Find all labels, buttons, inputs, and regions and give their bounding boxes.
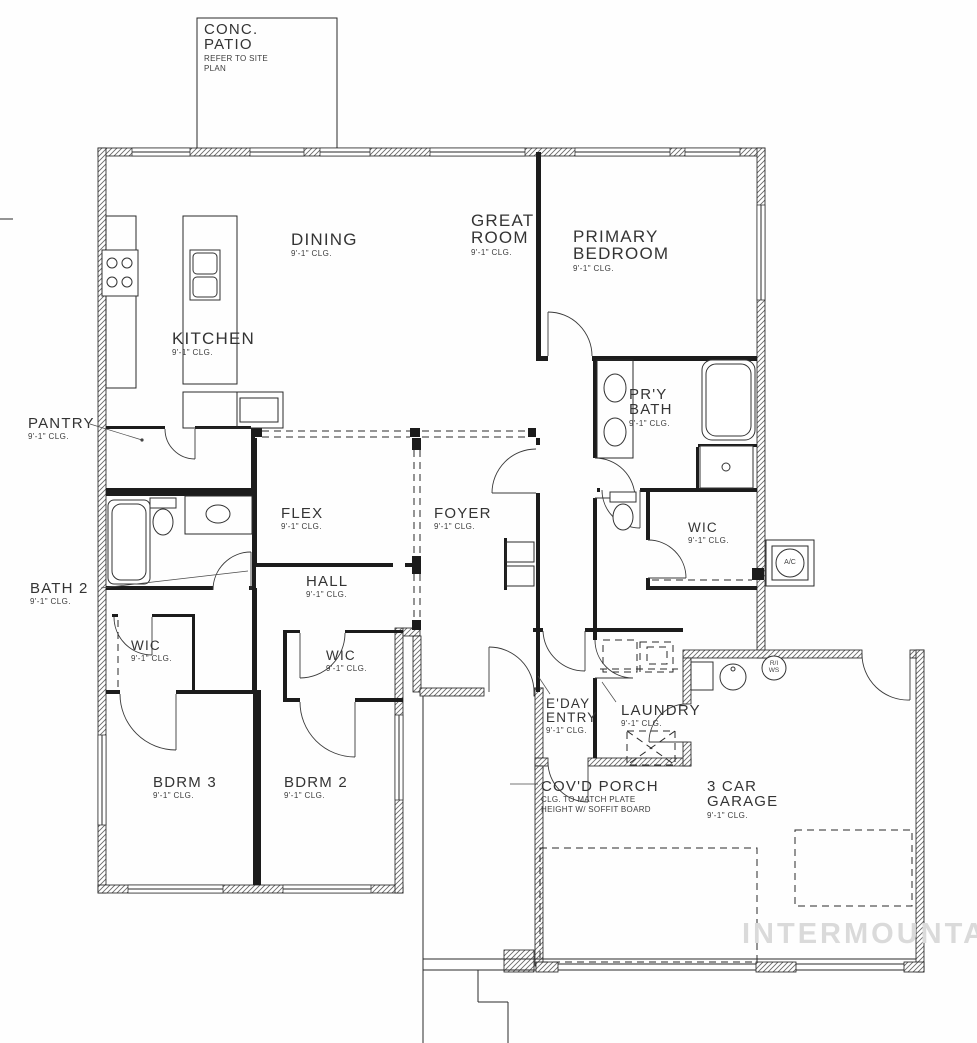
room-label-wic-bdrm3: WIC 9'-1" CLG. bbox=[131, 639, 172, 663]
ceiling-height: 9'-1" CLG. bbox=[434, 522, 492, 531]
room-note: REFER TO SITE PLAN bbox=[204, 54, 268, 74]
ceiling-height: 9'-1" CLG. bbox=[284, 791, 348, 800]
ceiling-height: 9'-1" CLG. bbox=[573, 264, 669, 273]
room-name: GREAT ROOM bbox=[471, 212, 534, 247]
room-name: WIC bbox=[131, 639, 172, 653]
room-label-bdrm-2: BDRM 2 9'-1" CLG. bbox=[284, 775, 348, 800]
watermark: INTERMOUNTAIN bbox=[742, 918, 977, 951]
ceiling-height: 9'-1" CLG. bbox=[546, 726, 598, 735]
ceiling-height: 9'-1" CLG. bbox=[471, 248, 534, 257]
water-softener-label: R/I WS bbox=[765, 661, 783, 675]
room-label-laundry: LAUNDRY 9'-1" CLG. bbox=[621, 703, 701, 728]
bath2-fixtures bbox=[108, 496, 252, 584]
room-label-primary-bedroom: PRIMARY BEDROOM 9'-1" CLG. bbox=[573, 228, 669, 273]
room-name: FOYER bbox=[434, 506, 492, 521]
ceiling-height: 9'-1" CLG. bbox=[131, 654, 172, 663]
room-label-bdrm-3: BDRM 3 9'-1" CLG. bbox=[153, 775, 217, 800]
patio-outline bbox=[0, 18, 337, 219]
room-name: 3 CAR GARAGE bbox=[707, 779, 778, 810]
room-name: HALL bbox=[306, 574, 348, 589]
room-name: WIC bbox=[688, 521, 729, 535]
room-name: LAUNDRY bbox=[621, 703, 701, 718]
room-name: DINING bbox=[291, 231, 358, 248]
room-name: FLEX bbox=[281, 506, 323, 521]
ceiling-height: 9'-1" CLG. bbox=[629, 419, 673, 428]
room-name: WIC bbox=[326, 649, 367, 663]
room-note: CLG. TO MATCH PLATE HEIGHT W/ SOFFIT BOA… bbox=[541, 795, 659, 815]
room-name: PANTRY bbox=[28, 416, 95, 431]
ceiling-height: 9'-1" CLG. bbox=[306, 590, 348, 599]
room-label-pry-bath: PR'Y BATH 9'-1" CLG. bbox=[629, 387, 673, 428]
room-label-conc-patio: CONC. PATIO REFER TO SITE PLAN bbox=[204, 22, 268, 74]
room-label-garage: 3 CAR GARAGE 9'-1" CLG. bbox=[707, 779, 778, 820]
ceiling-height: 9'-1" CLG. bbox=[30, 597, 89, 606]
room-name: COV'D PORCH bbox=[541, 779, 659, 794]
floor-plan: CONC. PATIO REFER TO SITE PLAN DINING 9'… bbox=[0, 0, 977, 1043]
ceiling-height: 9'-1" CLG. bbox=[281, 522, 323, 531]
room-label-kitchen: KITCHEN 9'-1" CLG. bbox=[172, 330, 255, 357]
room-name: BDRM 3 bbox=[153, 775, 217, 790]
room-label-covd-porch: COV'D PORCH CLG. TO MATCH PLATE HEIGHT W… bbox=[541, 779, 659, 815]
room-label-foyer: FOYER 9'-1" CLG. bbox=[434, 506, 492, 531]
room-label-dining: DINING 9'-1" CLG. bbox=[291, 231, 358, 258]
room-label-eday-entry: E'DAY ENTRY 9'-1" CLG. bbox=[546, 697, 598, 735]
room-label-wic-bdrm2: WIC 9'-1" CLG. bbox=[326, 649, 367, 673]
ceiling-height: 9'-1" CLG. bbox=[707, 811, 778, 820]
kitchen-fixtures bbox=[102, 216, 283, 428]
room-label-great-room: GREAT ROOM 9'-1" CLG. bbox=[471, 212, 534, 257]
room-name: PRIMARY BEDROOM bbox=[573, 228, 669, 263]
room-label-hall: HALL 9'-1" CLG. bbox=[306, 574, 348, 599]
room-name: BATH 2 bbox=[30, 581, 89, 596]
room-name: CONC. PATIO bbox=[204, 22, 268, 53]
ceiling-height: 9'-1" CLG. bbox=[153, 791, 217, 800]
ceiling-height: 9'-1" CLG. bbox=[172, 348, 255, 357]
room-name: PR'Y BATH bbox=[629, 387, 673, 418]
porch-walkway bbox=[423, 696, 916, 1043]
room-label-flex: FLEX 9'-1" CLG. bbox=[281, 506, 323, 531]
cased-openings bbox=[118, 431, 752, 688]
room-label-bath-2: BATH 2 9'-1" CLG. bbox=[30, 581, 89, 606]
ceiling-height: 9'-1" CLG. bbox=[291, 249, 358, 258]
room-name: E'DAY ENTRY bbox=[546, 697, 598, 725]
room-name: BDRM 2 bbox=[284, 775, 348, 790]
ceiling-height: 9'-1" CLG. bbox=[621, 719, 701, 728]
foyer-closet bbox=[506, 542, 534, 586]
ceiling-height: 9'-1" CLG. bbox=[326, 664, 367, 673]
room-name: KITCHEN bbox=[172, 330, 255, 347]
ceiling-height: 9'-1" CLG. bbox=[28, 432, 95, 441]
room-label-pantry: PANTRY 9'-1" CLG. bbox=[28, 416, 95, 441]
room-label-wic-primary: WIC 9'-1" CLG. bbox=[688, 521, 729, 545]
ceiling-height: 9'-1" CLG. bbox=[688, 536, 729, 545]
ac-unit-label: A/C bbox=[781, 559, 799, 566]
